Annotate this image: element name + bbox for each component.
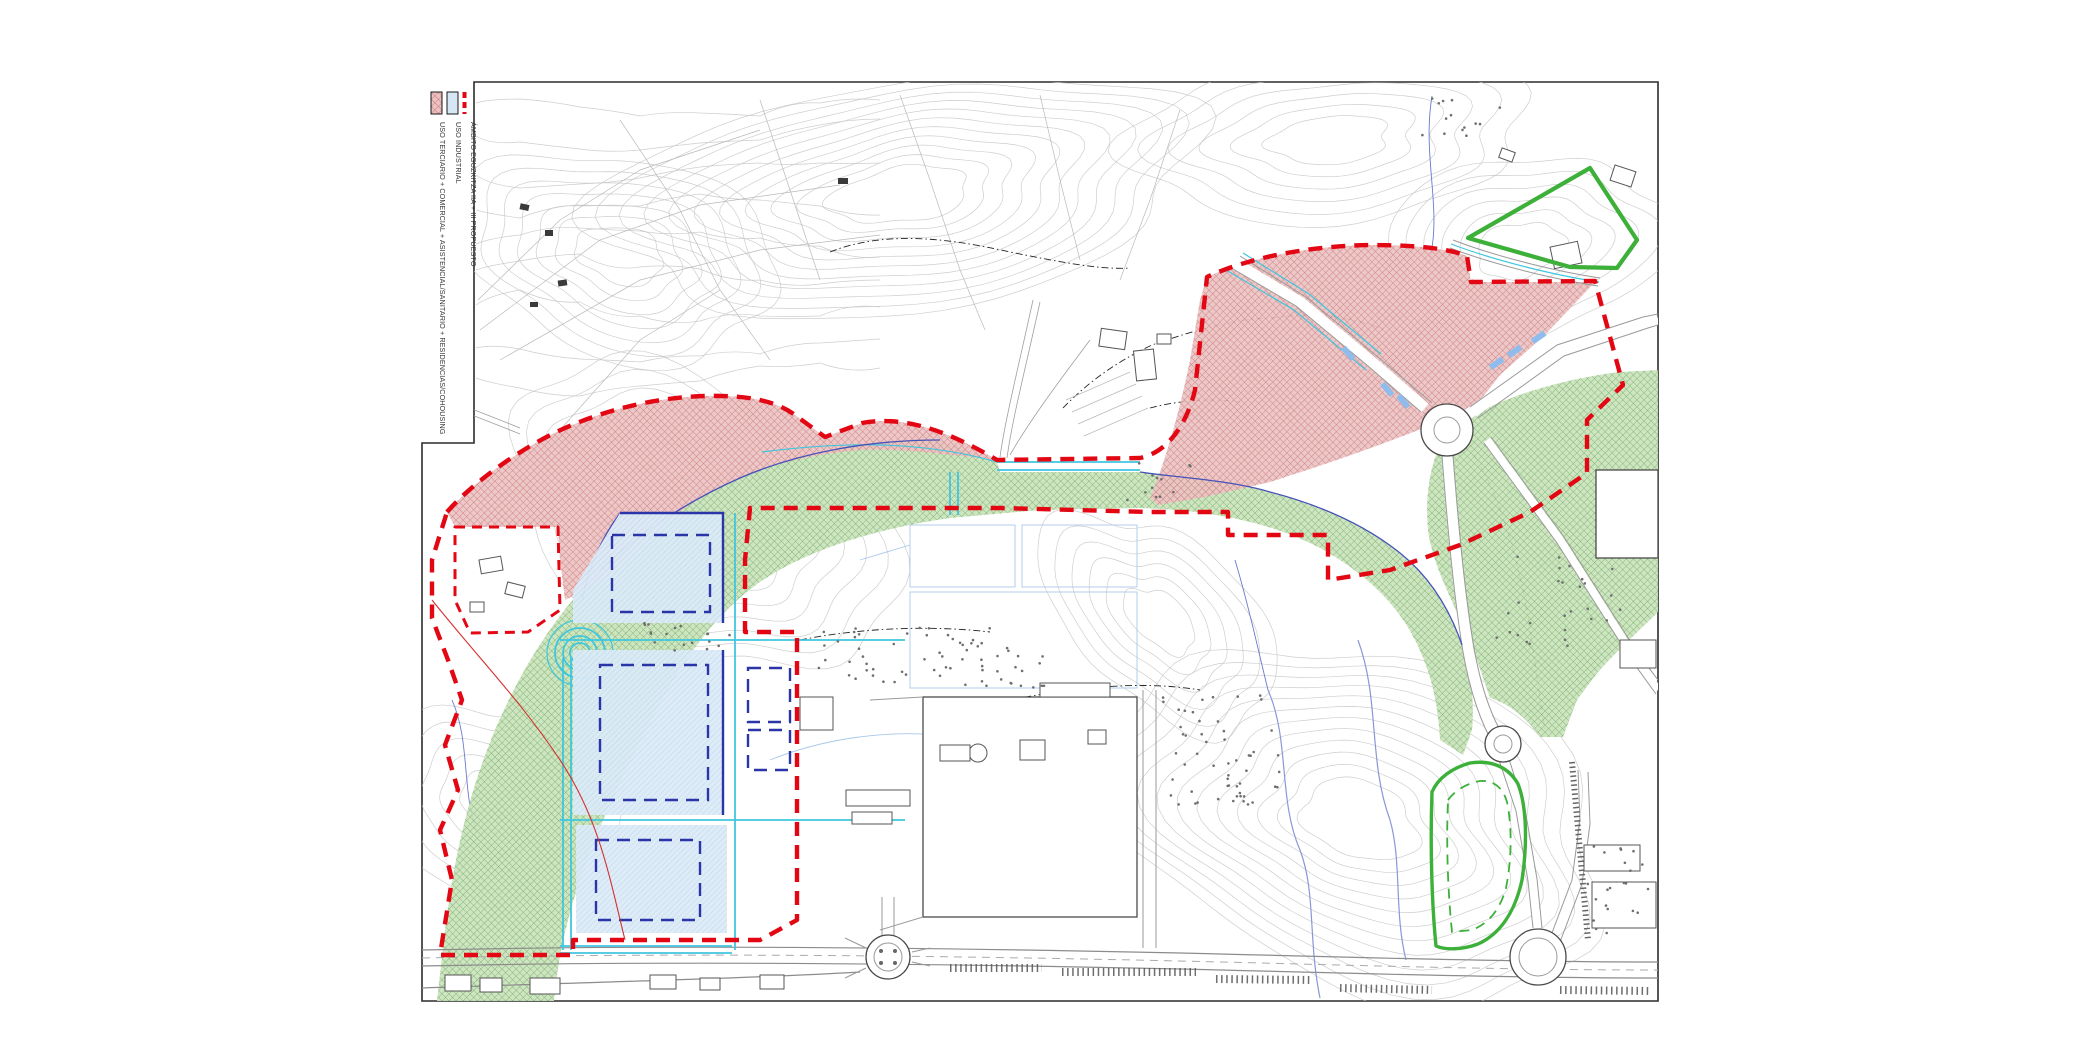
legend-swatch-terciario <box>431 92 442 114</box>
legend-label-industrial: USO INDUSTRIAL <box>454 122 463 184</box>
legend-swatch-industrial <box>447 92 458 114</box>
legend: USO TERCIARIO + COMERCIAL + ASISTENCIAL/… <box>431 92 478 435</box>
roundabout-east-small <box>1485 726 1521 762</box>
plan-sheet: USO TERCIARIO + COMERCIAL + ASISTENCIAL/… <box>0 0 2079 1039</box>
site-plan-map: USO TERCIARIO + COMERCIAL + ASISTENCIAL/… <box>0 0 2079 1039</box>
legend-label-terciario: USO TERCIARIO + COMERCIAL + ASISTENCIAL/… <box>438 122 447 435</box>
roundabout-south <box>866 935 910 979</box>
legend-label-ambito: ÁMBITO EGUZKITZA IIA + III PROPUESTO <box>469 122 478 267</box>
roundabout-southeast <box>1510 929 1566 985</box>
industrial-zone-b <box>573 650 723 815</box>
roundabout-northeast <box>1421 404 1473 456</box>
